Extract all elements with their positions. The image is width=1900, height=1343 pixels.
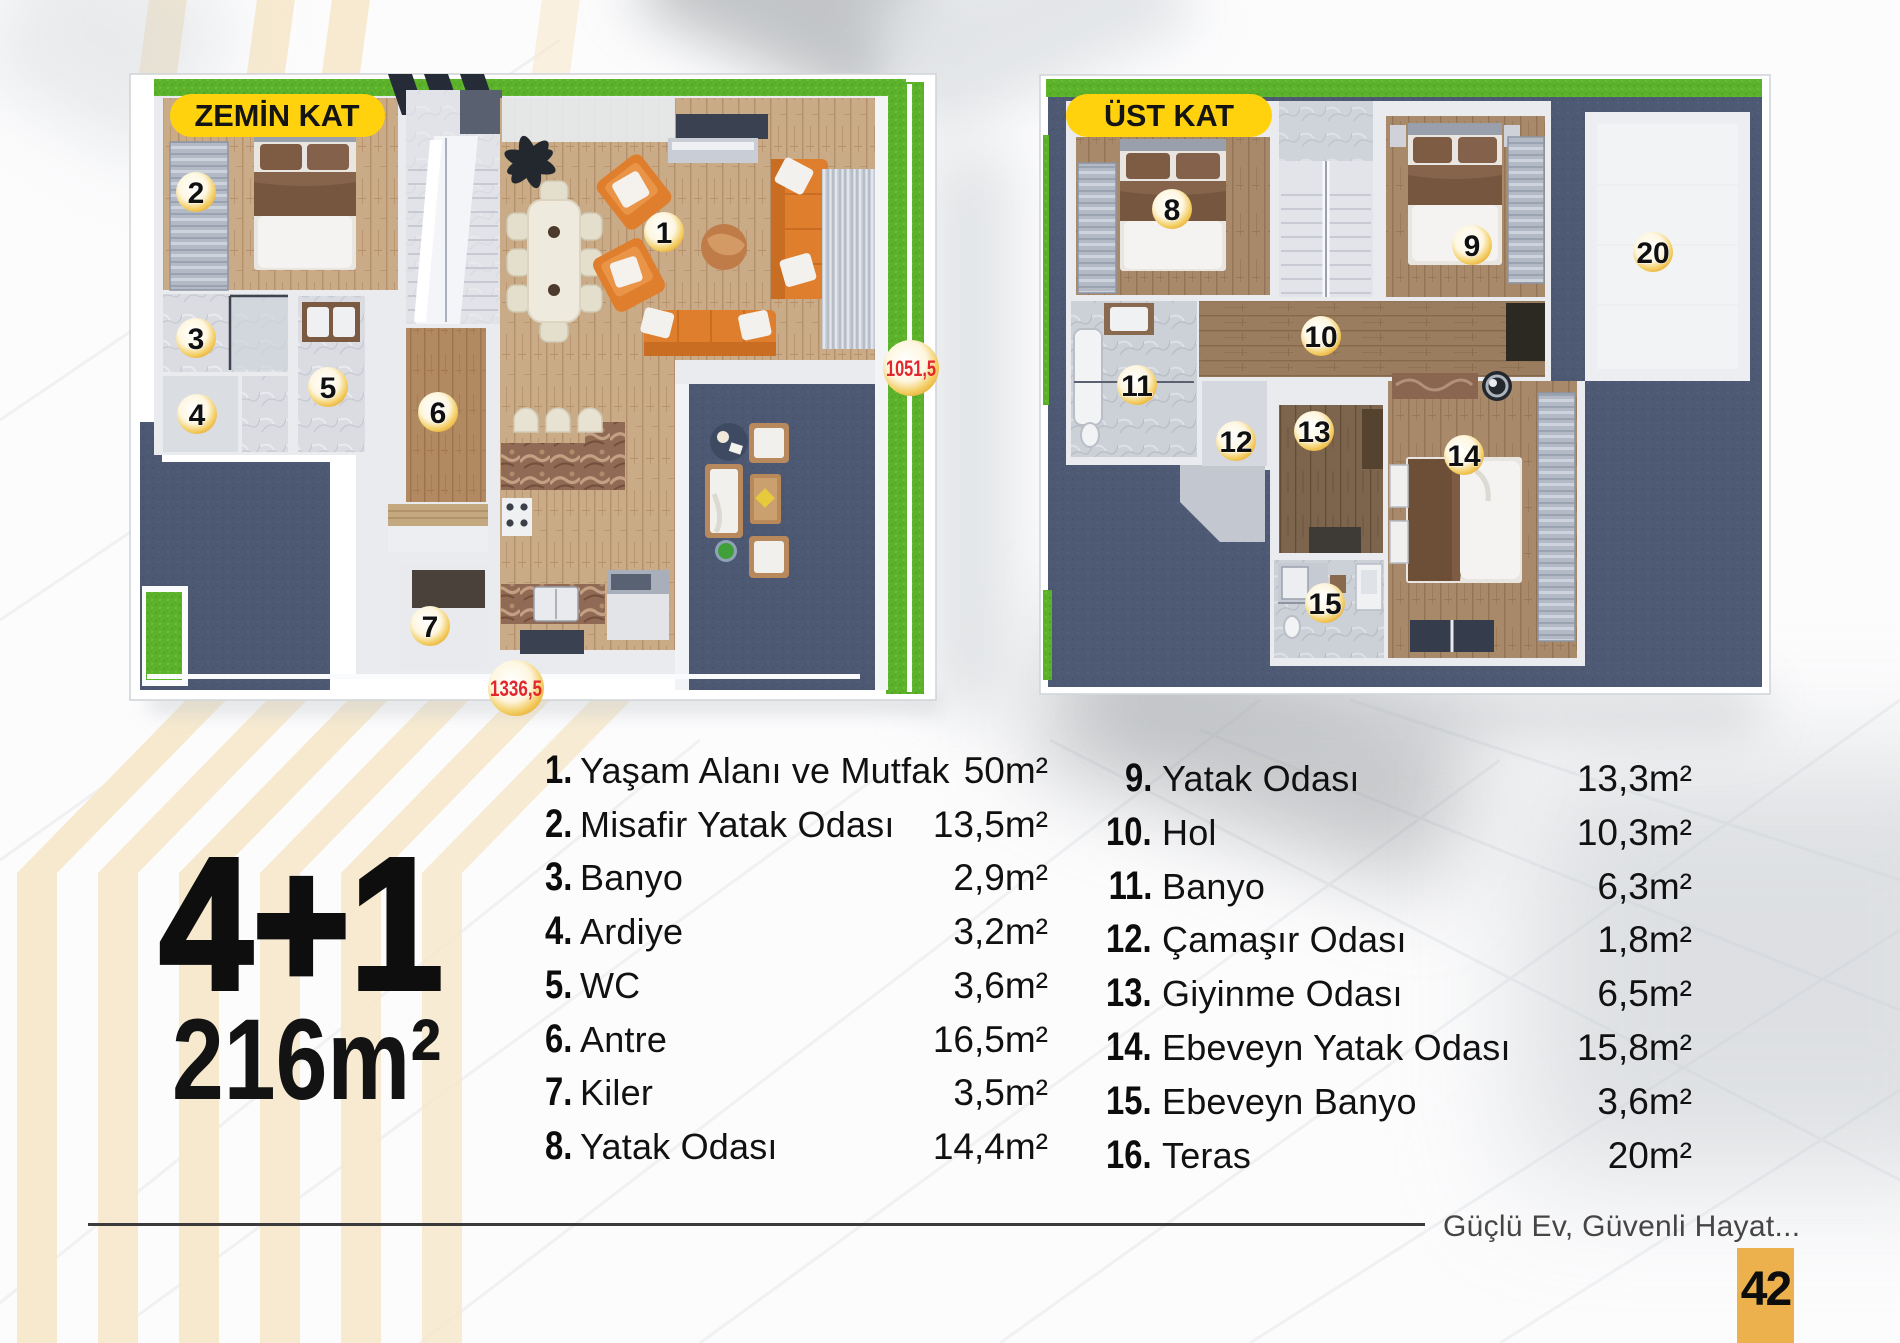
svg-text:8: 8 [1164, 194, 1181, 227]
svg-text:20: 20 [1636, 237, 1669, 270]
svg-text:1051,5: 1051,5 [886, 356, 936, 381]
svg-text:ÜST KAT: ÜST KAT [1104, 98, 1234, 133]
svg-text:ZEMİN KAT: ZEMİN KAT [195, 98, 360, 133]
svg-text:14: 14 [1447, 440, 1481, 473]
svg-text:2: 2 [188, 177, 205, 210]
svg-text:10: 10 [1304, 321, 1337, 354]
svg-text:1336,5: 1336,5 [490, 676, 542, 701]
svg-text:15: 15 [1308, 588, 1341, 621]
svg-text:5: 5 [320, 372, 337, 405]
svg-text:9: 9 [1464, 230, 1481, 263]
svg-text:6: 6 [430, 397, 447, 430]
svg-text:11: 11 [1121, 370, 1153, 403]
svg-text:12: 12 [1219, 426, 1252, 459]
svg-text:3: 3 [188, 323, 205, 356]
svg-text:1: 1 [656, 217, 673, 250]
svg-text:4: 4 [189, 399, 206, 432]
svg-text:13: 13 [1297, 416, 1330, 449]
svg-text:7: 7 [422, 611, 439, 644]
